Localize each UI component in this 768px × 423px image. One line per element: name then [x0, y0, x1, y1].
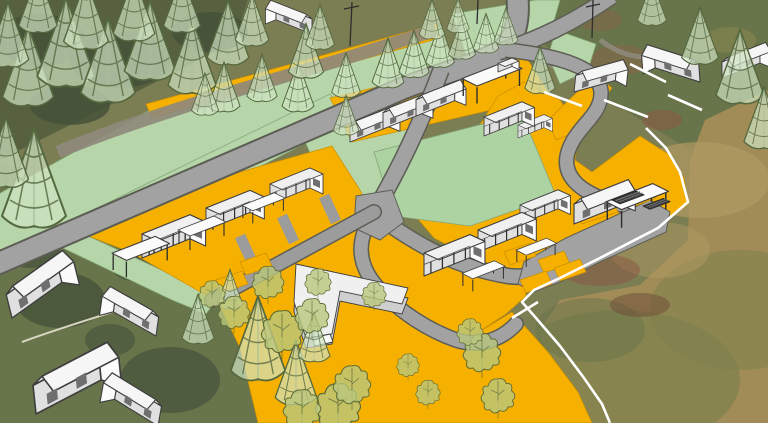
site-plan-rendering[interactable]: [0, 0, 768, 423]
site-plan-viewport[interactable]: [0, 0, 768, 423]
